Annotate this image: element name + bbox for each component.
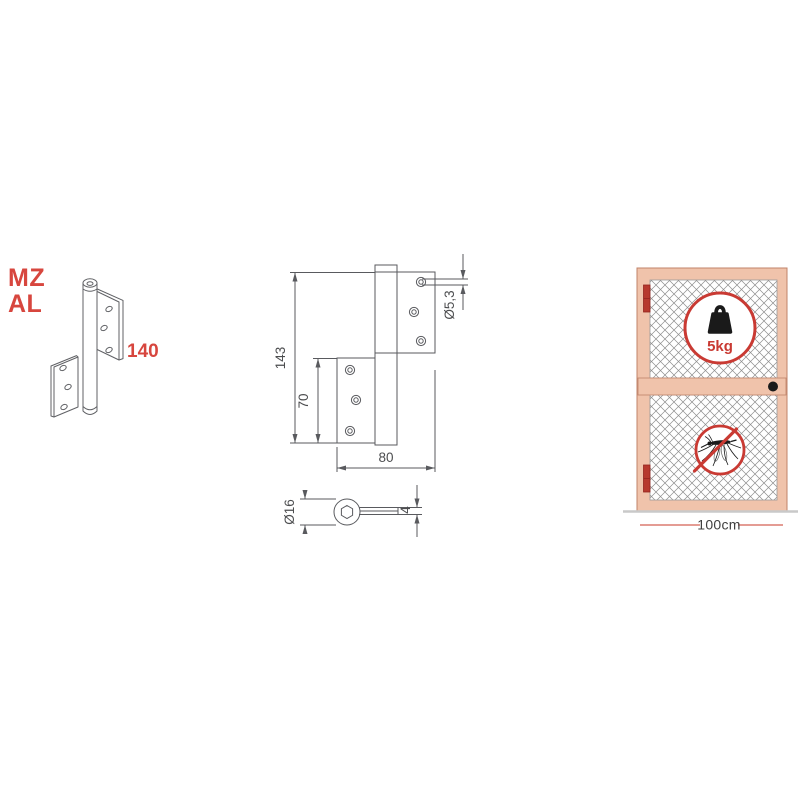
hinge-length-label: 140 (127, 341, 159, 363)
dim-leaf-thickness-label: 4 (398, 506, 413, 514)
dim-knuckle-diameter-label: Ø16 (282, 499, 297, 525)
dim-leaf-height-label: 70 (296, 393, 311, 408)
door-hinge-bottom (644, 465, 651, 492)
door-hinge-top (644, 285, 651, 312)
screen-door-illustration: 5kg 100cm (620, 258, 800, 543)
hinge-barrel (83, 279, 97, 415)
dim-knuckle-diameter (300, 491, 336, 533)
hinge-upper-leaf (94, 289, 123, 361)
dim-leaf-height (313, 359, 337, 443)
front-view (337, 265, 435, 445)
hinge-technical-drawing: 143 70 80 Ø5,3 (270, 248, 485, 543)
top-view (334, 499, 398, 525)
dim-width-label: 80 (378, 450, 393, 465)
hex-pin (341, 506, 352, 519)
dim-total-height-label: 143 (273, 347, 288, 370)
door-width-label: 100cm (697, 517, 741, 533)
door-knob (768, 382, 778, 392)
door-rail (638, 378, 786, 395)
door-width-annotation: 100cm (640, 517, 783, 533)
max-load-badge: 5kg (685, 293, 755, 363)
product-sheet: MZ AL (0, 0, 800, 800)
barrel-outline (375, 265, 397, 445)
max-load-label: 5kg (707, 338, 733, 355)
hinge-lower-leaf (51, 356, 78, 417)
no-mosquito-badge (695, 426, 745, 474)
dim-hole-diameter-label: Ø5,3 (442, 290, 457, 319)
